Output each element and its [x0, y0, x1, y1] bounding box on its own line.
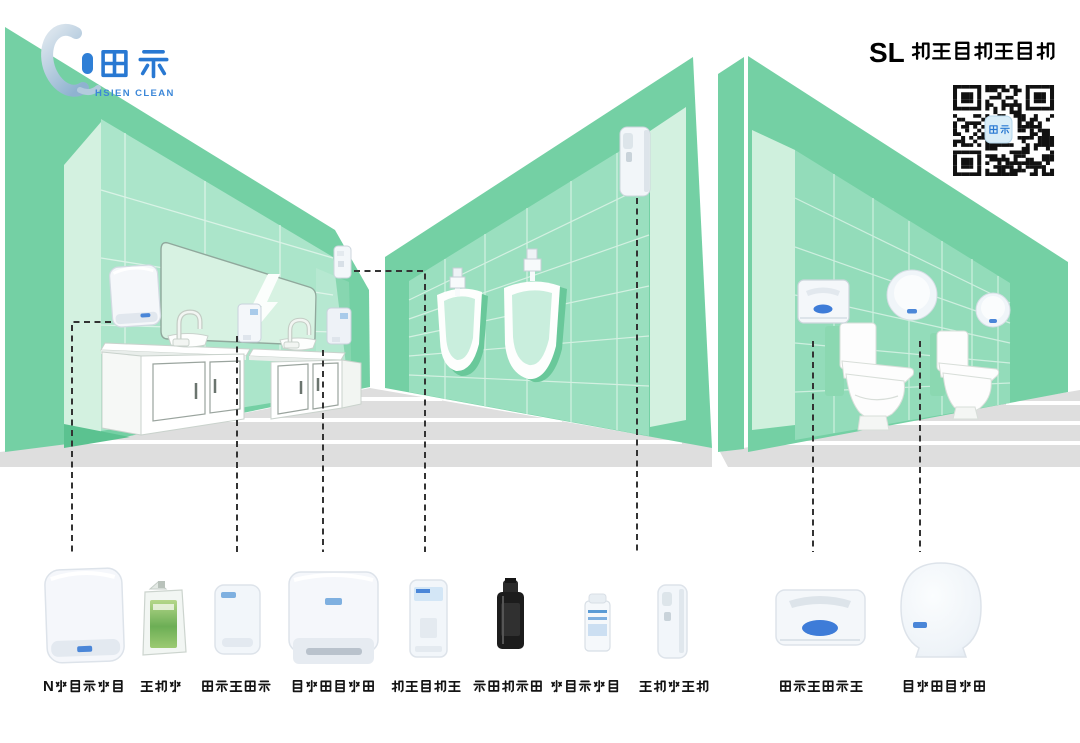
svg-text:SL: SL — [869, 37, 905, 68]
svg-text:N: N — [43, 678, 54, 695]
svg-text:HSIEN CLEAN: HSIEN CLEAN — [95, 88, 175, 99]
